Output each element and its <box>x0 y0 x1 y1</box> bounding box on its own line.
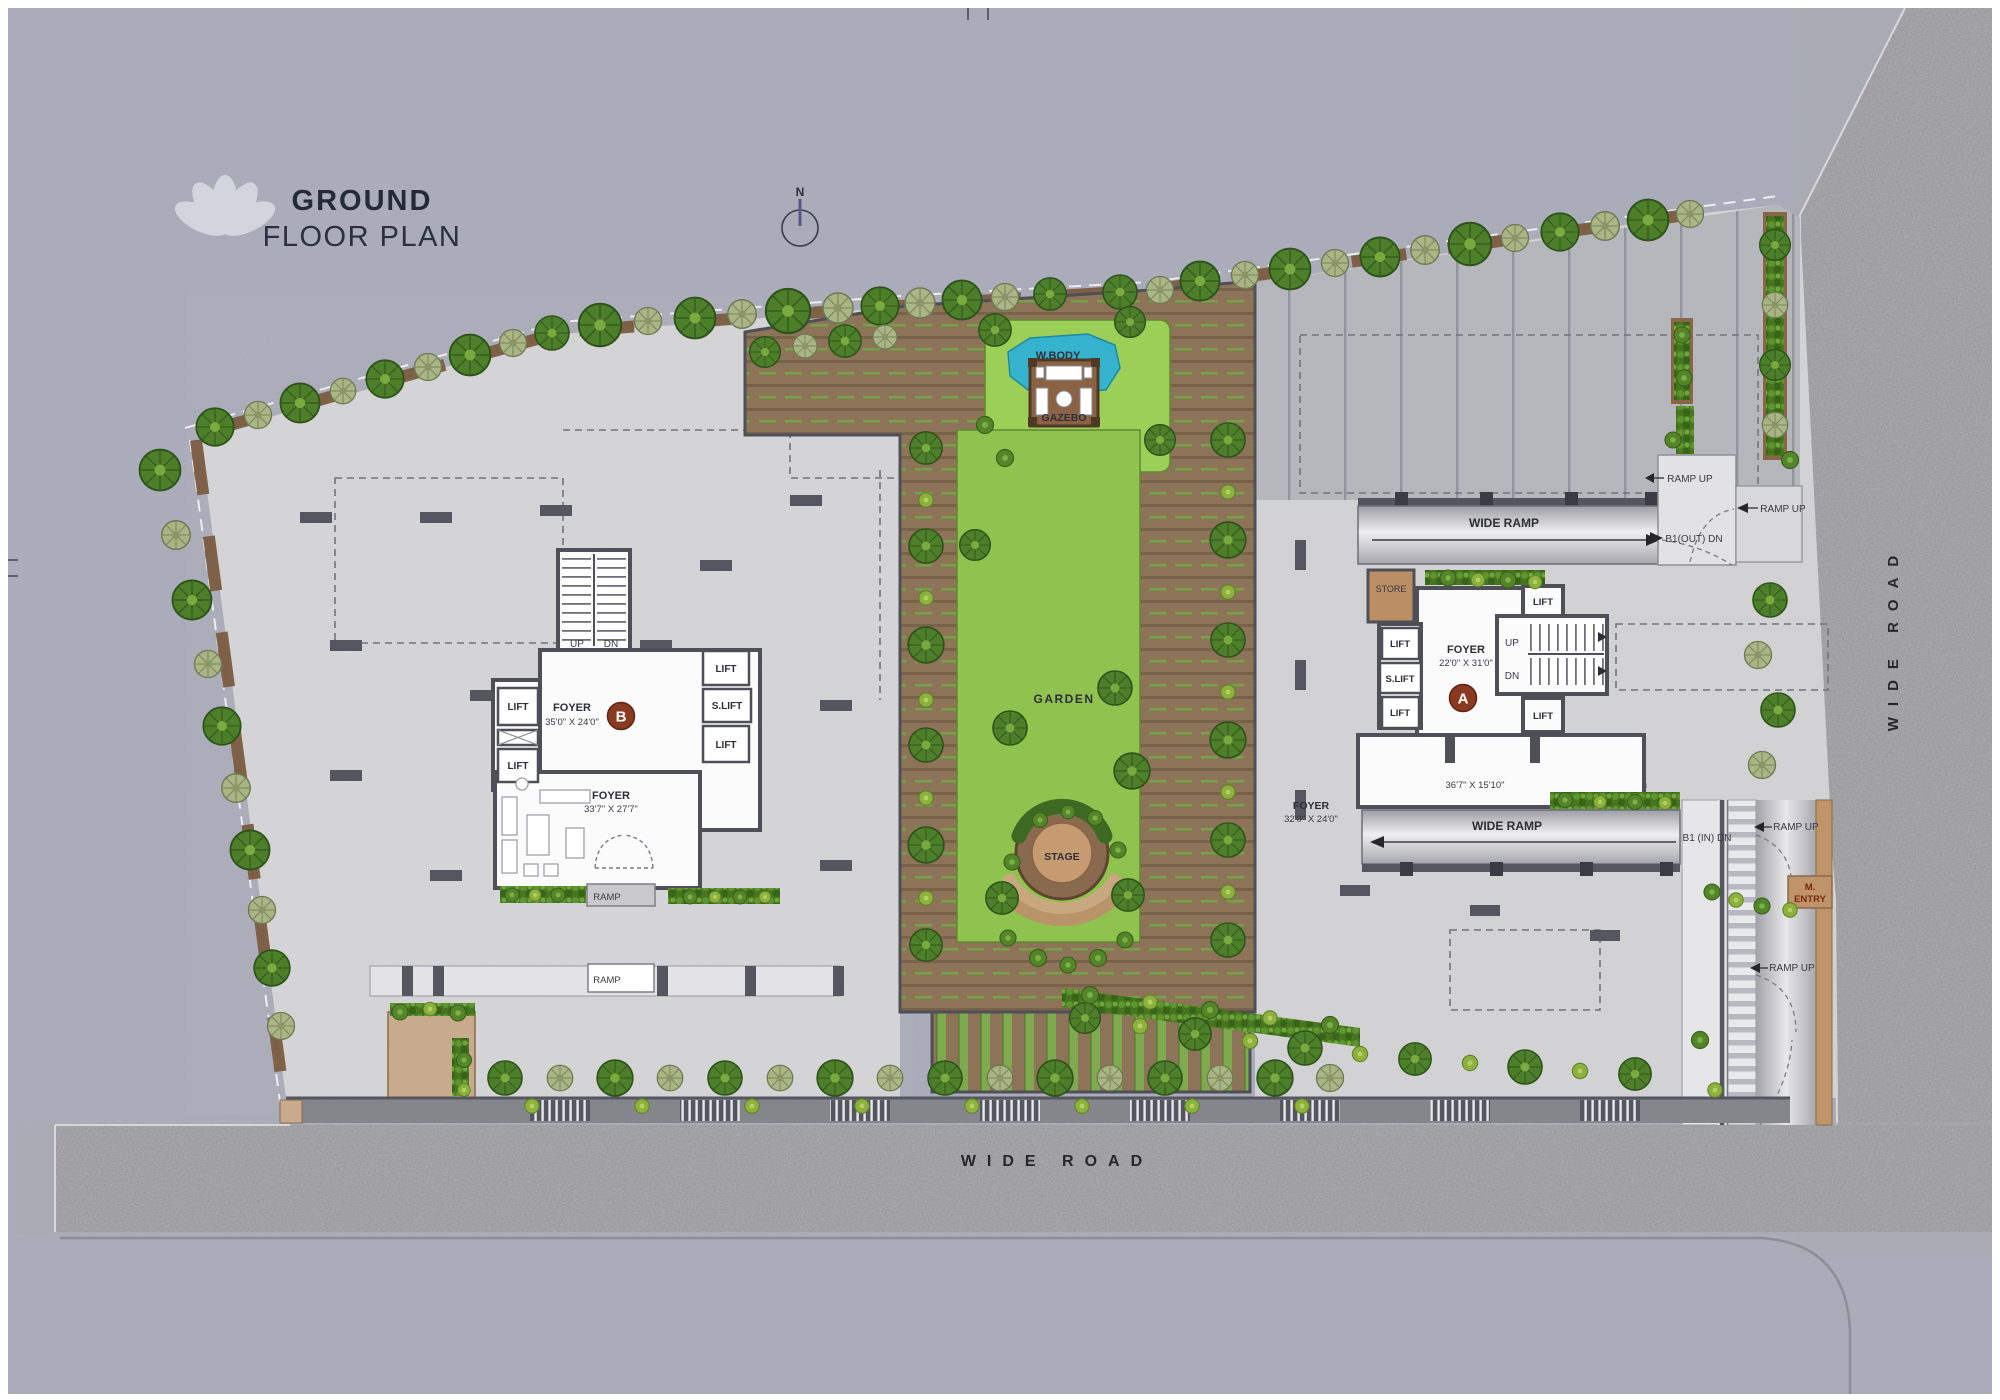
shrubY-icon <box>1221 485 1235 499</box>
tree-icon <box>280 383 319 422</box>
tower-a-stair-dn: DN <box>1505 671 1519 682</box>
shrub-icon <box>1704 884 1720 900</box>
shrub-icon <box>1500 572 1516 588</box>
tower-a-foyer-dim: 22'0" X 31'0" <box>1439 658 1493 669</box>
tree-icon <box>140 450 181 491</box>
shrub-icon <box>1117 932 1133 948</box>
treeP-icon <box>1749 752 1776 779</box>
shrubY-icon <box>1729 893 1743 907</box>
shrub-icon <box>1030 950 1047 967</box>
treeP-icon <box>1322 250 1349 277</box>
wide-ramp-top <box>1358 506 1670 564</box>
tree-icon <box>450 335 491 376</box>
tree-icon <box>1098 671 1132 705</box>
treeP-icon <box>268 1013 295 1040</box>
tree-icon <box>488 1061 522 1095</box>
tree-icon <box>910 432 942 464</box>
entry-planter-strip <box>1816 800 1832 1125</box>
tree-icon <box>1288 1031 1322 1065</box>
shrubY-icon <box>919 791 933 805</box>
tree-icon <box>579 304 622 347</box>
treeP-icon <box>162 521 191 550</box>
tower-b-stair-dn: DN <box>604 639 618 650</box>
stepped-walkway <box>1728 800 1756 1125</box>
tree-icon <box>1210 522 1246 558</box>
ramp-up-label-2: RAMP UP <box>1760 504 1806 515</box>
shrubY-icon <box>1295 1099 1309 1113</box>
shrubY-icon <box>919 693 933 707</box>
shrubY-icon <box>919 591 933 605</box>
tower-a-lift-left-3: LIFT <box>1390 708 1410 719</box>
ramp-up-label-1: RAMP UP <box>1667 474 1713 485</box>
tree-icon <box>979 314 1011 346</box>
treeP-icon <box>1232 262 1259 289</box>
shrubY-icon <box>529 889 541 901</box>
shrub-icon <box>1033 813 1048 828</box>
gazebo: GAZEBO <box>1028 358 1100 426</box>
tree-icon <box>829 325 861 357</box>
tower-a-lift-right-2: LIFT <box>1533 711 1553 722</box>
tree-icon <box>1180 261 1219 300</box>
tree-icon <box>1257 1060 1293 1096</box>
tree-icon <box>1103 275 1137 309</box>
treeP-icon <box>500 330 527 357</box>
tower-a-foyer-label: FOYER <box>1447 644 1485 656</box>
treeP-icon <box>1147 277 1174 304</box>
stair-flight <box>562 554 591 646</box>
tree-icon <box>1628 200 1669 241</box>
shrub-icon <box>1782 452 1799 469</box>
tower-b-foyer2-dim: 33'7" X 27'7" <box>584 804 638 815</box>
shrubY-icon <box>1572 1063 1587 1078</box>
tower-b-ramp-1: RAMP <box>593 892 620 903</box>
tree-icon <box>366 360 403 397</box>
shrub-icon <box>1692 1032 1709 1049</box>
treeP-icon <box>1502 225 1529 252</box>
shrubY-icon <box>635 1099 649 1113</box>
shrub-icon <box>1628 795 1643 810</box>
shrub-icon <box>1322 1017 1339 1034</box>
treeP-icon <box>1317 1065 1344 1092</box>
tree-icon <box>254 950 290 986</box>
tree-icon <box>1760 350 1791 381</box>
tree-icon <box>1761 693 1795 727</box>
tree-icon <box>1211 623 1245 657</box>
tree-icon <box>1211 823 1245 857</box>
tower-a-foyer2-dim: 32'0" X 24'0" <box>1284 814 1338 825</box>
tree-icon <box>909 728 943 762</box>
tree-icon <box>986 882 1018 914</box>
treeP-icon <box>992 284 1019 311</box>
m-entry-line2: ENTRY <box>1794 894 1827 905</box>
treeP-icon <box>330 378 356 404</box>
shrubY-icon <box>1221 685 1235 699</box>
title-line-2: FLOOR PLAN <box>263 221 462 253</box>
shrub-icon <box>1000 930 1016 946</box>
tree-icon <box>1034 278 1066 310</box>
tower-a-lift-right-1: LIFT <box>1533 597 1553 608</box>
tower-b-lift-right-3: LIFT <box>715 740 736 751</box>
tree-icon <box>1211 423 1245 457</box>
shrub-icon <box>392 1004 408 1020</box>
treeP-icon <box>793 334 817 358</box>
tree-icon <box>942 280 981 319</box>
tower-b-foyer2-label: FOYER <box>592 790 630 802</box>
shrub-icon <box>683 890 697 904</box>
tower-a-lift-left-2: S.LIFT <box>1385 674 1414 685</box>
tree-icon <box>1148 1061 1182 1095</box>
ramp-up-label-3: RAMP UP <box>1773 822 1819 833</box>
store-label: STORE <box>1376 584 1407 594</box>
tower-a-stair-up: UP <box>1505 638 1519 649</box>
shrub-icon <box>1110 842 1126 858</box>
b1-in-label: B1 (IN) DN <box>1683 833 1732 844</box>
treeP-icon <box>823 293 853 323</box>
shrubY-icon <box>919 891 933 905</box>
floor-plan-page: W.BODY GAZEBO GARDEN STAGE UP DN <box>0 0 2000 1400</box>
tower-b-lift-right-2: S.LIFT <box>712 701 743 712</box>
shrub-icon <box>1082 987 1099 1004</box>
tower-b-foyer-dim: 35'0" X 24'0" <box>545 717 599 728</box>
shrubY-icon <box>1221 885 1235 899</box>
shrubY-icon <box>525 1099 539 1113</box>
m-entry-line1: M. <box>1805 882 1816 893</box>
tree-icon <box>196 408 233 445</box>
tree-icon <box>1753 583 1787 617</box>
tree-icon <box>909 529 943 563</box>
tree-icon <box>861 287 898 324</box>
tower-a-foyer2-label: FOYER <box>1293 800 1330 812</box>
wide-ramp-bottom-label: WIDE RAMP <box>1472 819 1542 833</box>
tower-b-lift-left-2: LIFT <box>507 761 528 772</box>
tree-icon <box>1112 879 1144 911</box>
garden-label: GARDEN <box>1033 692 1094 706</box>
stair-flight <box>1528 624 1604 651</box>
shrubY-icon <box>1352 1046 1367 1061</box>
treeP-icon <box>877 1065 903 1091</box>
shrub-icon <box>1202 1002 1219 1019</box>
tree-icon <box>1619 1058 1651 1090</box>
shrub-icon <box>1558 793 1573 808</box>
shrubY-icon <box>1242 1033 1257 1048</box>
treeP-icon <box>657 1065 683 1091</box>
shrubY-icon <box>745 1099 759 1113</box>
shrub-icon <box>1754 898 1770 914</box>
tree-icon <box>908 627 944 663</box>
treeP-icon <box>728 300 757 329</box>
tree-icon <box>993 711 1027 745</box>
stair-flight <box>597 554 626 646</box>
treeP-icon <box>905 288 935 318</box>
shrubY-icon <box>1263 1011 1277 1025</box>
shrubY-icon <box>1075 1099 1089 1113</box>
treeP-icon <box>415 354 442 381</box>
shrub-icon <box>1440 570 1456 586</box>
tree-icon <box>230 830 269 869</box>
shrub-icon <box>733 890 747 904</box>
tree-icon <box>928 1061 962 1095</box>
tree-icon <box>708 1061 742 1095</box>
shrub-icon <box>1090 950 1107 967</box>
tower-b-foyer-label: FOYER <box>553 702 591 714</box>
tree-icon <box>1115 307 1146 338</box>
road-label-right: WIDE ROAD <box>1885 545 1902 732</box>
side-walk-lane <box>1682 800 1722 1125</box>
treeP-icon <box>1411 236 1440 265</box>
tree-icon <box>1449 223 1492 266</box>
shrubY-icon <box>919 493 933 507</box>
tree-icon <box>1210 722 1246 758</box>
store-room <box>1368 570 1414 622</box>
treeP-icon <box>987 1065 1013 1091</box>
treeP-icon <box>1762 292 1788 318</box>
tree-icon <box>1179 1018 1211 1050</box>
ramp-up-label-4: RAMP UP <box>1769 963 1815 974</box>
shrubY-icon <box>855 1099 869 1113</box>
treeP-icon <box>1097 1065 1123 1091</box>
title-line-1: GROUND <box>292 185 433 217</box>
wide-ramp-top-label: WIDE RAMP <box>1469 516 1539 530</box>
ramp-up-box-side <box>1736 486 1802 562</box>
tree-icon <box>1114 753 1150 789</box>
shrubY-icon <box>1594 796 1607 809</box>
tower-b-lift-right-1: LIFT <box>715 664 736 675</box>
treeP-icon <box>249 897 276 924</box>
shrubY-icon <box>1462 1055 1477 1070</box>
treeP-icon <box>873 325 897 349</box>
tree-icon <box>535 316 569 350</box>
shrubY-icon <box>709 891 721 903</box>
shrubY-icon <box>1708 1083 1722 1097</box>
shrubY-icon <box>1528 575 1542 589</box>
tree-icon <box>1270 249 1311 290</box>
tree-icon <box>1760 230 1791 261</box>
shrub-icon <box>1004 854 1020 870</box>
tree-icon <box>817 1060 853 1096</box>
shrubY-icon <box>965 1099 979 1113</box>
tree-icon <box>1541 213 1578 250</box>
shrub-icon <box>450 1005 466 1021</box>
shrubY-icon <box>1471 573 1485 587</box>
treeP-icon <box>1745 642 1772 669</box>
treeP-icon <box>547 1065 573 1091</box>
tree-icon <box>1145 425 1176 456</box>
gazebo-label: GAZEBO <box>1042 412 1087 424</box>
shrub-icon <box>1674 327 1690 343</box>
treeP-icon <box>195 651 222 678</box>
treeP-icon <box>1762 412 1788 438</box>
shrubY-icon <box>1221 585 1235 599</box>
tower-b-badge-letter: B <box>616 709 627 726</box>
tree-icon <box>908 827 944 863</box>
floor-plan-canvas: W.BODY GAZEBO GARDEN STAGE UP DN <box>0 0 2000 1400</box>
shrub-icon <box>1061 805 1075 819</box>
treeP-icon <box>767 1065 793 1091</box>
tree-icon <box>1211 923 1245 957</box>
shrubY-icon <box>1143 995 1157 1009</box>
shrubY-icon <box>1659 797 1672 810</box>
shrubY-icon <box>1132 1018 1147 1033</box>
tree-icon <box>1360 237 1399 276</box>
tree-icon <box>766 289 810 333</box>
hatch-wall <box>1718 800 1728 1125</box>
shrub-icon <box>997 450 1014 467</box>
shrubY-icon <box>1185 1099 1199 1113</box>
shrub-icon <box>551 888 565 902</box>
shrubY-icon <box>1221 785 1235 799</box>
treeP-icon <box>635 308 662 335</box>
tree-icon <box>1399 1043 1431 1075</box>
site-wall-bottom <box>280 1098 1790 1123</box>
tower-a-room-dim: 36'7" X 15'10" <box>1446 780 1505 791</box>
tree-icon <box>1037 1060 1073 1096</box>
shrub-icon <box>1676 370 1692 386</box>
shrub-icon <box>457 1053 472 1068</box>
tree-icon <box>910 929 942 961</box>
shrubY-icon <box>759 891 771 903</box>
stair-flight <box>1528 658 1604 685</box>
north-label: N <box>796 185 805 199</box>
tree-icon <box>203 707 240 744</box>
shrub-icon <box>505 888 519 902</box>
shrub-icon <box>977 417 994 434</box>
tree-icon <box>172 580 211 619</box>
treeP-icon <box>1677 201 1704 228</box>
tower-b-stair-up: UP <box>570 639 584 650</box>
tower-b-lift-left-1: LIFT <box>507 702 528 713</box>
tower-a-lift-left-1: LIFT <box>1390 639 1410 650</box>
shrubY-icon <box>1783 903 1797 917</box>
tree-icon <box>960 530 991 561</box>
treeP-icon <box>222 774 251 803</box>
tree-icon <box>597 1060 633 1096</box>
tree-icon <box>1508 1050 1542 1084</box>
shrubY-icon <box>458 1084 471 1097</box>
stage-label: STAGE <box>1044 851 1079 863</box>
road-bottom <box>55 1125 1992 1232</box>
treeP-icon <box>245 402 272 429</box>
shrub-icon <box>1088 811 1103 826</box>
tower-a-badge-letter: A <box>1458 691 1469 708</box>
shrub-icon <box>1060 957 1076 973</box>
tower-b-ramp-2: RAMP <box>593 975 620 986</box>
tree-icon <box>750 337 781 368</box>
tree-icon <box>675 298 716 339</box>
shrubY-icon <box>423 1002 437 1016</box>
b1-out-label: B1(OUT) DN <box>1665 534 1722 545</box>
treeP-icon <box>1207 1065 1233 1091</box>
shrub-icon <box>1665 432 1681 448</box>
tree-icon <box>1070 1003 1101 1034</box>
road-label-bottom: WIDE ROAD <box>961 1153 1153 1170</box>
treeP-icon <box>1591 212 1620 241</box>
